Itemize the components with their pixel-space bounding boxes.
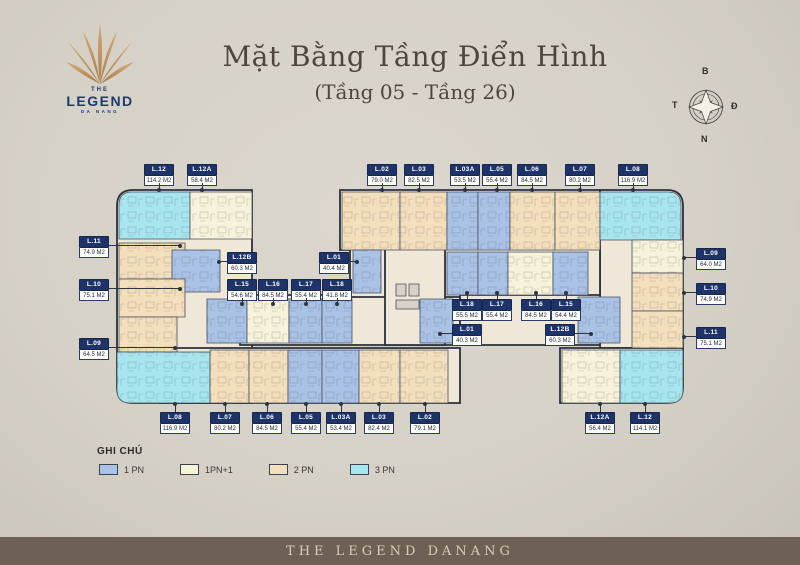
stair-core: [396, 300, 419, 309]
unit-label-l15: L.1554.6 M2: [227, 279, 257, 301]
unit-l03a-bottom-texture: [322, 350, 359, 403]
leader-line: [306, 405, 307, 412]
unit-label-l12a: L.12A58.4 M2: [187, 164, 217, 186]
unit-label-l12: L.12114.2 M2: [144, 164, 174, 186]
unit-area: 84.5 M2: [252, 424, 282, 434]
unit-id: L.09: [696, 248, 726, 260]
unit-area: 56.4 M2: [585, 424, 615, 434]
unit-area: 40.3 M2: [452, 336, 482, 346]
unit-label-l05: L.0555.4 M2: [482, 164, 512, 186]
leader-dot: [598, 402, 602, 406]
unit-l02-bottom-texture: [400, 350, 448, 403]
unit-id: L.02: [410, 412, 440, 424]
compass-east-label: Đ: [731, 101, 738, 111]
leader-dot: [304, 402, 308, 406]
unit-l01-left-texture: [353, 250, 381, 293]
unit-label-l12b: L.12B60.3 M2: [545, 324, 575, 346]
unit-label-l16: L.1684.5 M2: [521, 299, 551, 321]
unit-label-l17: L.1755.4 M2: [291, 279, 321, 301]
unit-l16-right-texture: [508, 252, 553, 295]
unit-id: L.05: [482, 164, 512, 176]
unit-label-l11: L.1174.9 M2: [79, 236, 109, 258]
unit-id: L.01: [452, 324, 482, 336]
leader-dot: [377, 402, 381, 406]
unit-area: 40.4 M2: [319, 264, 349, 274]
leader-dot: [200, 188, 204, 192]
leader-dot: [339, 402, 343, 406]
unit-label-l16: L.1684.5 M2: [258, 279, 288, 301]
unit-label-l12b: L.12B60.3 M2: [227, 252, 257, 274]
footer-text: THE LEGEND DANANG: [286, 544, 514, 559]
legend-title: GHI CHÚ: [97, 446, 143, 457]
leader-dot: [223, 402, 227, 406]
unit-id: L.17: [482, 299, 512, 311]
leader-line: [267, 405, 268, 412]
unit-id: L.12B: [227, 252, 257, 264]
unit-l18-right-texture: [447, 252, 478, 295]
unit-area: 60.3 M2: [545, 336, 575, 346]
unit-label-l03a: L.03A53.5 M2: [450, 164, 480, 186]
unit-id: L.05: [291, 412, 321, 424]
unit-id: L.12: [144, 164, 174, 176]
unit-id: L.08: [618, 164, 648, 176]
unit-id: L.12A: [585, 412, 615, 424]
page-subtitle: (Tầng 05 - Tầng 26): [30, 80, 800, 104]
legend-swatch: [180, 464, 199, 475]
leader-dot: [465, 291, 469, 295]
legend-swatch: [350, 464, 369, 475]
unit-area: 79.1 M2: [410, 424, 440, 434]
unit-l11-right-texture: [632, 311, 683, 348]
unit-area: 84.5 M2: [521, 311, 551, 321]
unit-area: 75.1 M2: [79, 291, 109, 301]
footer-banner: THE LEGEND DANANG: [0, 537, 800, 565]
unit-id: L.10: [696, 283, 726, 295]
unit-l12a-bottom-texture: [562, 350, 620, 403]
unit-id: L.18: [322, 279, 352, 291]
leader-line: [225, 405, 226, 412]
leader-line: [175, 405, 176, 412]
unit-id: L.09: [79, 338, 109, 350]
unit-l03a-top-texture: [447, 192, 478, 250]
compass-south-label: N: [701, 134, 708, 144]
leader-dot: [534, 291, 538, 295]
unit-area: 74.9 M2: [696, 295, 726, 305]
leader-dot: [631, 188, 635, 192]
unit-l10-left-texture: [119, 279, 185, 317]
leader-dot: [355, 260, 359, 264]
unit-label-l09: L.0964.0 M2: [696, 248, 726, 270]
legend: 1 PN1PN+12 PN3 PN: [99, 464, 395, 475]
leader-line: [379, 405, 380, 412]
unit-id: L.03: [364, 412, 394, 424]
unit-l07-top-texture: [555, 192, 600, 250]
leader-dot: [178, 244, 182, 248]
unit-l12-top-texture: [119, 192, 190, 239]
unit-l12a-top-texture: [190, 192, 252, 239]
unit-id: L.10: [79, 279, 109, 291]
leader-dot: [643, 402, 647, 406]
unit-l03-top-texture: [400, 192, 447, 250]
logo-city: DA NANG: [53, 110, 147, 115]
unit-l17-right-texture: [478, 252, 508, 295]
legend-label: 1PN+1: [205, 465, 233, 475]
unit-l08-bottom-left-texture: [117, 352, 210, 403]
unit-id: L.03A: [326, 412, 356, 424]
leader-dot: [530, 188, 534, 192]
unit-area: 74.9 M2: [79, 248, 109, 258]
unit-id: L.18: [452, 299, 482, 311]
leader-dot: [240, 302, 244, 306]
leader-dot: [682, 291, 686, 295]
unit-label-l07: L.0780.2 M2: [210, 412, 240, 434]
leader-dot: [271, 302, 275, 306]
leader-dot: [564, 291, 568, 295]
lift-1: [396, 284, 406, 296]
unit-id: L.06: [517, 164, 547, 176]
unit-label-l05: L.0555.4 M2: [291, 412, 321, 434]
legend-item-3-pn: 3 PN: [350, 464, 395, 475]
unit-id: L.12: [630, 412, 660, 424]
unit-label-l08: L.08116.9 M2: [618, 164, 648, 186]
unit-label-l12a: L.12A56.4 M2: [585, 412, 615, 434]
unit-area: 55.4 M2: [291, 424, 321, 434]
unit-l08-top-right-texture: [600, 192, 681, 240]
unit-l09-right-texture: [632, 240, 683, 273]
unit-label-l09: L.0964.5 M2: [79, 338, 109, 360]
unit-label-l01: L.0140.4 M2: [319, 252, 349, 274]
unit-area: 82.4 M2: [364, 424, 394, 434]
leader-line: [109, 347, 175, 348]
leader-line: [600, 405, 601, 412]
unit-label-l06: L.0684.5 M2: [252, 412, 282, 434]
leader-dot: [438, 332, 442, 336]
unit-l16-left-texture: [247, 299, 289, 343]
unit-l05-top-texture: [478, 192, 510, 250]
unit-label-l08: L.08116.9 M2: [160, 412, 190, 434]
unit-label-l03: L.0382.5 M2: [404, 164, 434, 186]
unit-label-l10: L.1074.9 M2: [696, 283, 726, 305]
leader-dot: [495, 291, 499, 295]
unit-id: L.17: [291, 279, 321, 291]
unit-label-l11: L.1175.1 M2: [696, 327, 726, 349]
unit-id: L.15: [551, 299, 581, 311]
page-title: Mặt Bằng Tầng Điển Hình: [30, 40, 800, 73]
leader-dot: [173, 402, 177, 406]
unit-label-l15: L.1554.4 M2: [551, 299, 581, 321]
leader-line: [645, 405, 646, 412]
unit-area: 64.0 M2: [696, 260, 726, 270]
unit-id: L.16: [258, 279, 288, 291]
unit-id: L.03: [404, 164, 434, 176]
brochure-page: THE LEGEND DA NANG Mặt Bằng Tầng Điển Hì…: [0, 0, 800, 565]
unit-l12-bottom-texture: [620, 350, 683, 403]
leader-line: [341, 405, 342, 412]
leader-dot: [380, 188, 384, 192]
leader-dot: [423, 402, 427, 406]
leader-dot: [417, 188, 421, 192]
leader-dot: [304, 302, 308, 306]
unit-label-l18: L.1841.8 M2: [322, 279, 352, 301]
unit-label-l03: L.0382.4 M2: [364, 412, 394, 434]
leader-dot: [157, 188, 161, 192]
unit-id: L.08: [160, 412, 190, 424]
unit-area: 116.9 M2: [160, 424, 190, 434]
unit-id: L.11: [79, 236, 109, 248]
unit-area: 53.4 M2: [326, 424, 356, 434]
leader-dot: [682, 256, 686, 260]
unit-label-l12: L.12114.1 M2: [630, 412, 660, 434]
unit-label-l02: L.0279.0 M2: [367, 164, 397, 186]
unit-label-l06: L.0684.5 M2: [517, 164, 547, 186]
leader-line: [425, 405, 426, 412]
unit-l06-bottom-texture: [249, 350, 288, 403]
unit-id: L.11: [696, 327, 726, 339]
unit-id: L.16: [521, 299, 551, 311]
unit-area: 55.5 M2: [452, 311, 482, 321]
unit-area: 54.4 M2: [551, 311, 581, 321]
legend-swatch: [99, 464, 118, 475]
unit-label-l10: L.1075.1 M2: [79, 279, 109, 301]
unit-id: L.02: [367, 164, 397, 176]
unit-id: L.12B: [545, 324, 575, 336]
unit-label-l03a: L.03A53.4 M2: [326, 412, 356, 434]
lift-2: [409, 284, 419, 296]
unit-id: L.01: [319, 252, 349, 264]
leader-dot: [217, 260, 221, 264]
leader-dot: [682, 335, 686, 339]
unit-l01-right-texture: [420, 299, 453, 343]
leader-line: [109, 245, 180, 246]
unit-l07-bottom-texture: [210, 350, 249, 403]
leader-dot: [589, 332, 593, 336]
unit-area: 60.3 M2: [227, 264, 257, 274]
unit-area: 80.2 M2: [210, 424, 240, 434]
unit-label-l07: L.0780.2 M2: [565, 164, 595, 186]
unit-l15-right-texture: [553, 252, 588, 295]
compass-north-label: B: [702, 66, 709, 76]
unit-id: L.07: [565, 164, 595, 176]
unit-area: 114.1 M2: [630, 424, 660, 434]
unit-l12b-right-texture: [578, 297, 620, 343]
leader-dot: [265, 402, 269, 406]
legend-label: 1 PN: [124, 465, 144, 475]
unit-id: L.06: [252, 412, 282, 424]
compass-west-label: T: [672, 100, 678, 110]
unit-label-l17: L.1755.4 M2: [482, 299, 512, 321]
leader-dot: [495, 188, 499, 192]
unit-l02-top-texture: [342, 192, 400, 250]
legend-item-2-pn: 2 PN: [269, 464, 314, 475]
unit-id: L.03A: [450, 164, 480, 176]
unit-l05-bottom-texture: [288, 350, 322, 403]
unit-l03-bottom-texture: [359, 350, 400, 403]
legend-item-1pn+1: 1PN+1: [180, 464, 233, 475]
leader-dot: [578, 188, 582, 192]
title-block: Mặt Bằng Tầng Điển Hình (Tầng 05 - Tầng …: [30, 40, 800, 104]
leader-dot: [178, 287, 182, 291]
unit-id: L.07: [210, 412, 240, 424]
leader-dot: [173, 346, 177, 350]
leader-dot: [335, 302, 339, 306]
legend-swatch: [269, 464, 288, 475]
unit-l10-right-texture: [632, 273, 683, 311]
unit-id: L.15: [227, 279, 257, 291]
unit-id: L.12A: [187, 164, 217, 176]
unit-l06-top-texture: [510, 192, 555, 250]
leader-dot: [463, 188, 467, 192]
legend-label: 3 PN: [375, 465, 395, 475]
unit-area: 75.1 M2: [696, 339, 726, 349]
unit-label-l01: L.0140.3 M2: [452, 324, 482, 346]
unit-label-l02: L.0279.1 M2: [410, 412, 440, 434]
unit-area: 55.4 M2: [482, 311, 512, 321]
legend-label: 2 PN: [294, 465, 314, 475]
unit-label-l18: L.1855.5 M2: [452, 299, 482, 321]
leader-line: [109, 288, 180, 289]
legend-item-1-pn: 1 PN: [99, 464, 144, 475]
unit-area: 64.5 M2: [79, 350, 109, 360]
